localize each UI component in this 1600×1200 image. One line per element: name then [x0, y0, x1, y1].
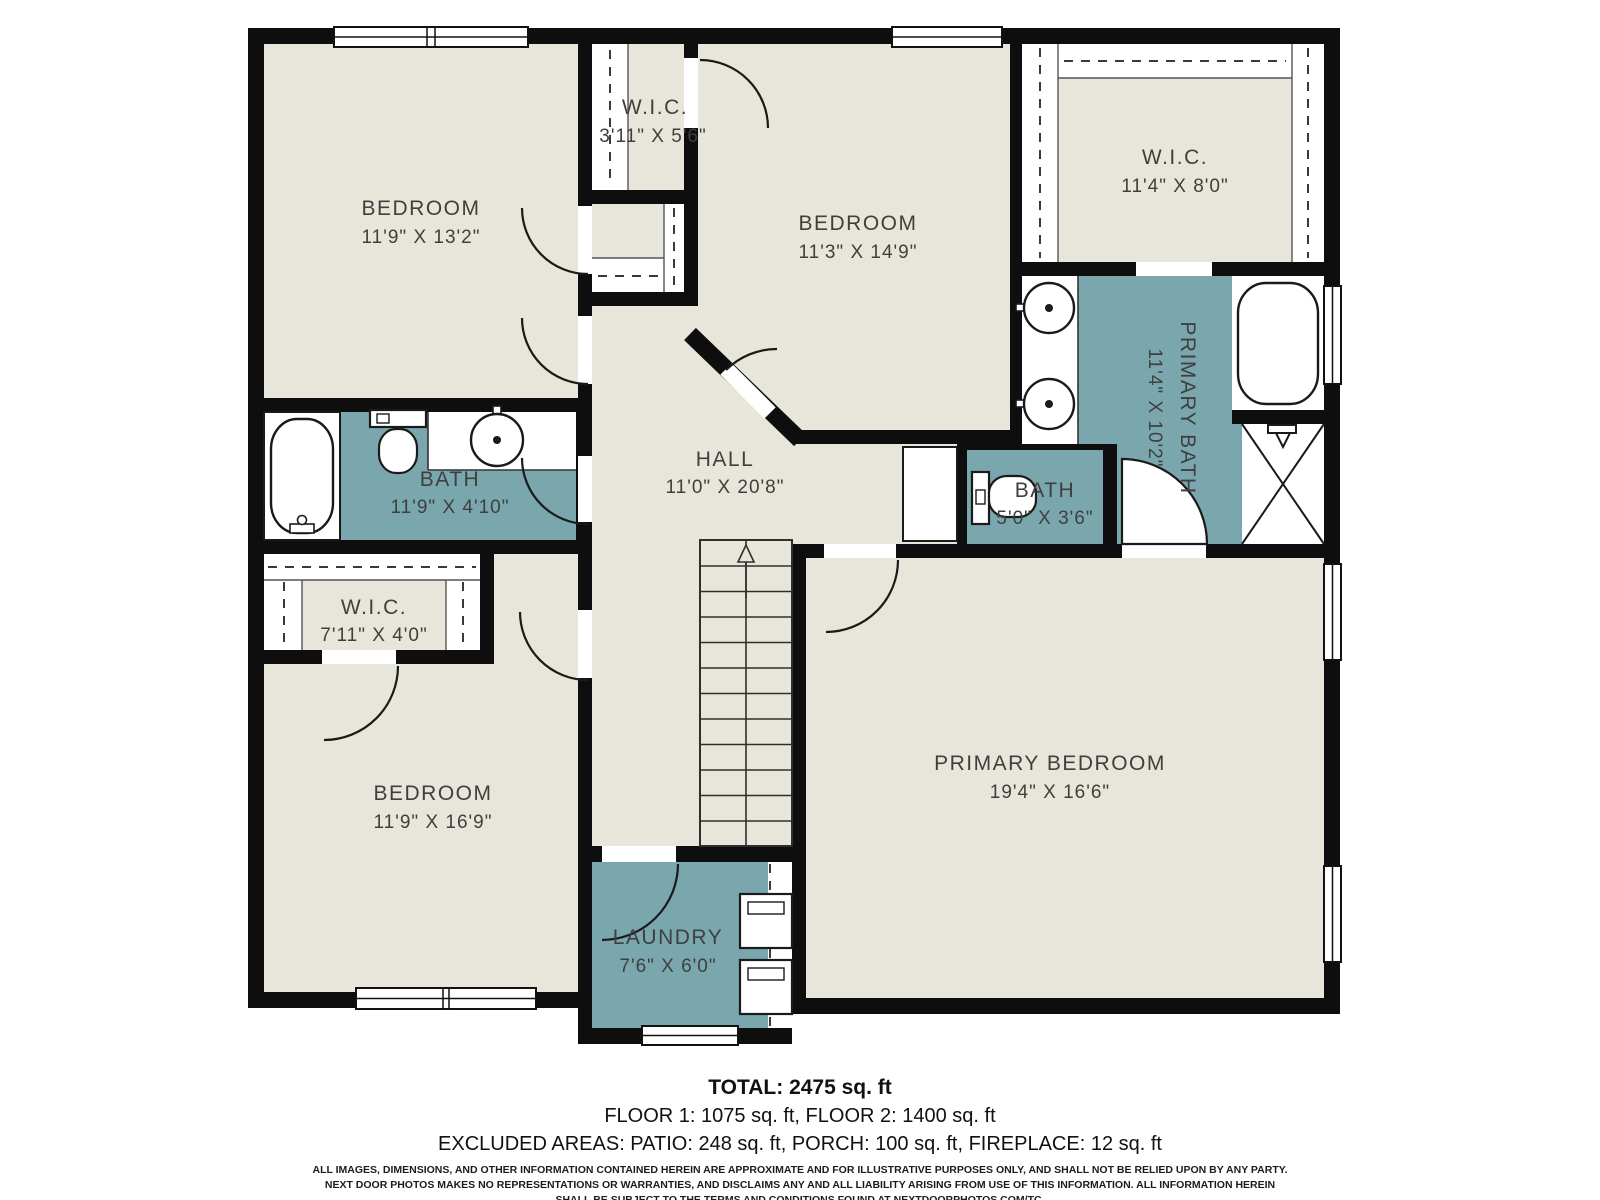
window-bedroom-bottom-left: [356, 988, 536, 1009]
window-laundry: [642, 1026, 738, 1045]
window-primary-bedroom-lower: [1324, 866, 1341, 962]
dims-hall: 11'0" X 20'8": [666, 477, 785, 498]
summary-block: TOTAL: 2475 sq. ft FLOOR 1: 1075 sq. ft,…: [0, 1076, 1600, 1200]
floor-areas: FLOOR 1: 1075 sq. ft, FLOOR 2: 1400 sq. …: [0, 1105, 1600, 1128]
dims-primary-bedroom: 19'4" X 16'6": [990, 782, 1110, 803]
label-bedroom-top-middle: BEDROOM: [798, 212, 917, 235]
label-hall: HALL: [696, 448, 755, 471]
room-primary-bedroom: [806, 558, 1324, 998]
bathtub-icon-primary: [1238, 283, 1318, 404]
dims-laundry: 7'6" X 6'0": [619, 956, 716, 977]
dims-bath-small: 5'0" X 3'6": [996, 508, 1093, 529]
disclaimer: ALL IMAGES, DIMENSIONS, AND OTHER INFORM…: [0, 1163, 1600, 1200]
dims-bath-left: 11'9" X 4'10": [391, 497, 510, 518]
total-area: TOTAL: 2475 sq. ft: [0, 1076, 1600, 1100]
window-primary-bedroom-upper: [1324, 564, 1341, 660]
label-bath-left: BATH: [420, 468, 480, 491]
disclaimer-line-2: NEXT DOOR PHOTOS MAKES NO REPRESENTATION…: [0, 1178, 1600, 1193]
label-laundry: LAUNDRY: [613, 926, 723, 949]
label-bath-small: BATH: [1015, 479, 1075, 502]
dims-wic-top-right: 11'4" X 8'0": [1121, 176, 1228, 197]
label-wic-top-right: W.I.C.: [1142, 146, 1208, 169]
room-bedroom-top-middle: [698, 44, 1010, 430]
label-bedroom-bottom-left: BEDROOM: [373, 782, 492, 805]
window-bedroom-top-left: [334, 27, 528, 47]
doorway-bath-small: [903, 447, 957, 541]
dims-primary-bath: 11'4" X 10'2": [1144, 349, 1165, 468]
dims-bedroom-top-left: 11'9" X 13'2": [362, 227, 481, 248]
dims-wic-left: 7'11" X 4'0": [320, 625, 427, 646]
dims-bedroom-top-middle: 11'3" X 14'9": [799, 242, 918, 263]
label-primary-bath: PRIMARY BATH: [1176, 321, 1199, 494]
window-primary-bath: [1324, 286, 1341, 384]
floor-plan-drawing: BEDROOM 11'9" X 13'2" W.I.C. 3'11" X 5'6…: [0, 0, 1600, 1060]
label-primary-bedroom: PRIMARY BEDROOM: [934, 752, 1166, 775]
excluded-areas: EXCLUDED AREAS: PATIO: 248 sq. ft, PORCH…: [0, 1133, 1600, 1156]
room-bedroom-top-left: [264, 44, 578, 398]
label-wic-left: W.I.C.: [341, 596, 407, 619]
disclaimer-line-1: ALL IMAGES, DIMENSIONS, AND OTHER INFORM…: [0, 1163, 1600, 1178]
dims-bedroom-bottom-left: 11'9" X 16'9": [374, 812, 493, 833]
dims-wic-top: 3'11" X 5'6": [599, 126, 706, 147]
disclaimer-line-3: SHALL BE SUBJECT TO THE TERMS AND CONDIT…: [0, 1193, 1600, 1200]
floor-plan-page: BEDROOM 11'9" X 13'2" W.I.C. 3'11" X 5'6…: [0, 0, 1600, 1200]
window-bedroom-top-middle: [892, 27, 1002, 47]
label-bedroom-top-left: BEDROOM: [361, 197, 480, 220]
label-wic-top: W.I.C.: [622, 96, 688, 119]
